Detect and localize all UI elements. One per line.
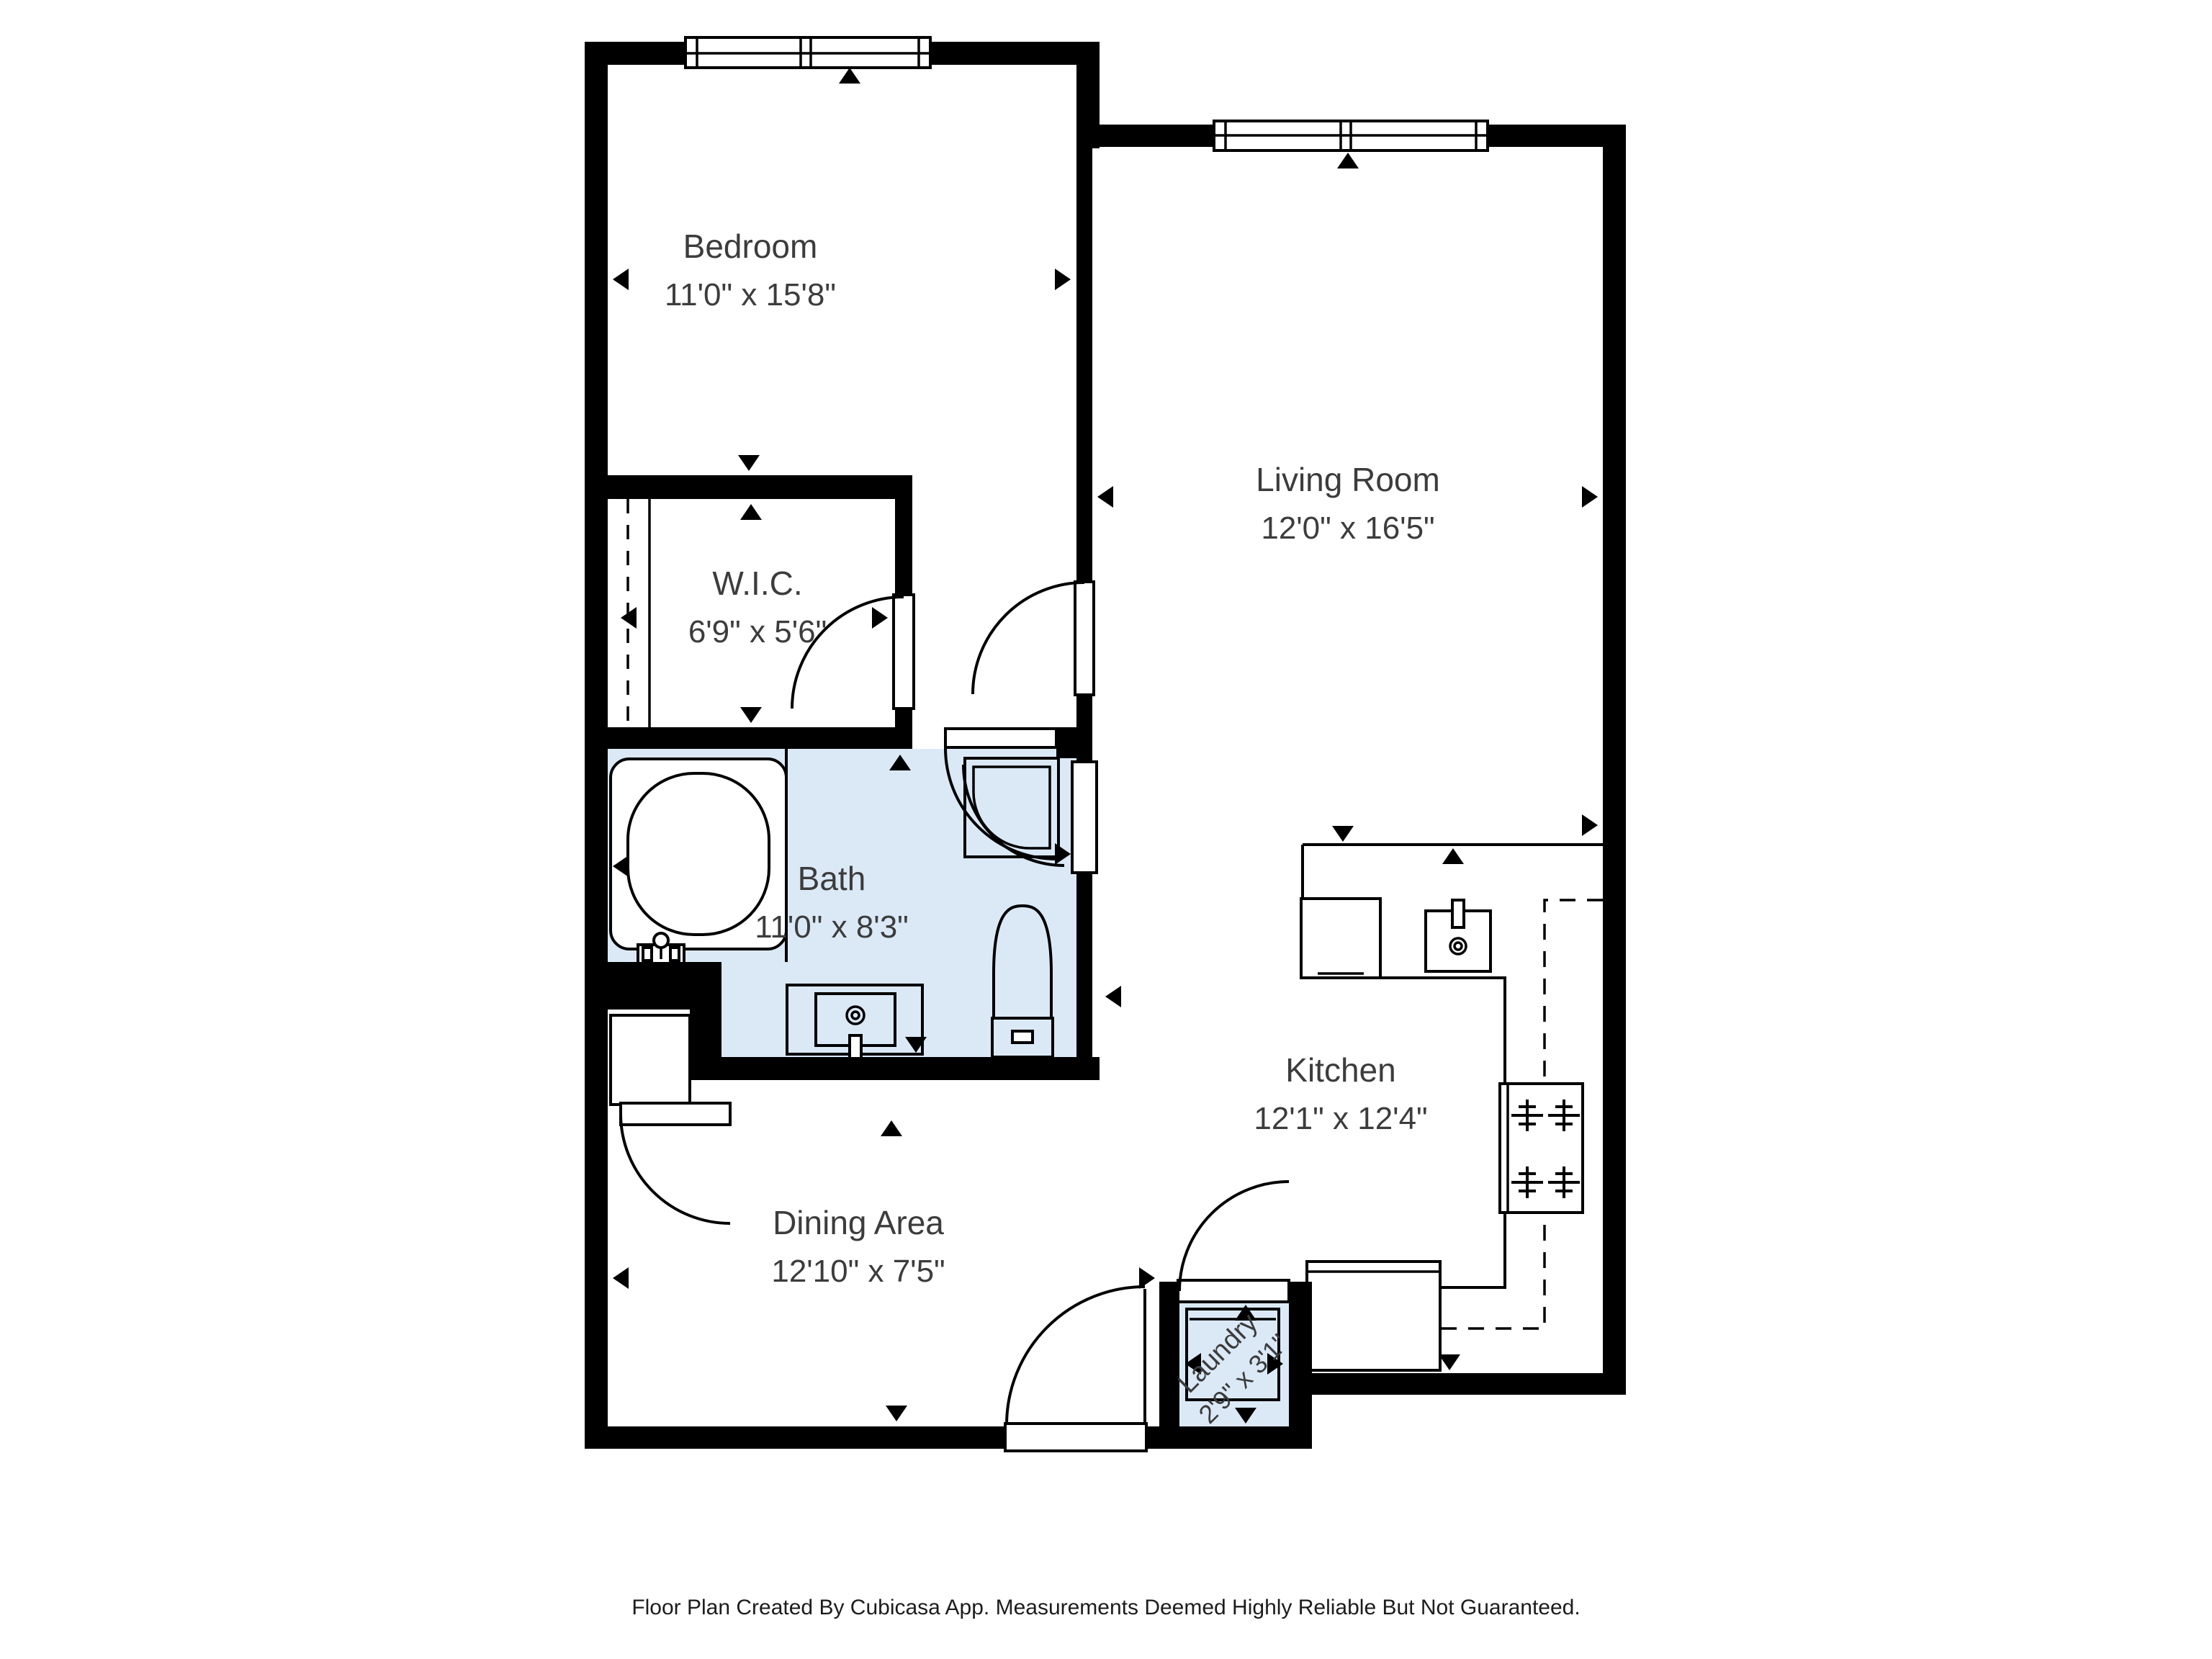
wic-dimensions: 6'9" x 5'6" <box>688 614 827 649</box>
left-exterior-wall <box>585 42 608 1449</box>
kitchen-faucet-icon <box>1452 900 1464 927</box>
stove <box>1500 1084 1583 1213</box>
bedroom-label: Bedroom <box>683 228 818 265</box>
footer-disclaimer: Floor Plan Created By Cubicasa App. Meas… <box>631 1596 1580 1619</box>
dining-area-dimensions: 12'10" x 7'5" <box>771 1254 945 1289</box>
bath-top-wall <box>608 727 895 749</box>
bath-dimensions: 11'0" x 8'3" <box>755 909 909 945</box>
dining-area-label: Dining Area <box>773 1204 944 1241</box>
wic-right-wall-lower <box>895 706 912 749</box>
bedroom-dimensions: 11'0" x 15'8" <box>665 277 836 313</box>
floor-plan-page: Bedroom 11'0" x 15'8" Living Room 12'0" … <box>0 0 2212 1659</box>
right-exterior-wall <box>1603 125 1626 1395</box>
bedroom-bottom-wall <box>608 475 912 499</box>
refrigerator-outline <box>1301 899 1380 978</box>
bath-label: Bath <box>798 860 866 897</box>
entry-door-opening <box>1005 1424 1146 1451</box>
bath-bottom-wall <box>721 1057 1100 1080</box>
kitchen-sink <box>1426 900 1491 971</box>
living-window-icon <box>1214 121 1488 150</box>
laundry-right-wall <box>1289 1282 1312 1449</box>
wic-door <box>894 595 914 709</box>
wic-right-wall-upper <box>895 475 912 596</box>
kitchen-label: Kitchen <box>1285 1051 1395 1089</box>
wic-label: W.I.C. <box>712 565 802 602</box>
bedroom-window-icon <box>685 37 930 68</box>
living-left-wall-lower <box>1076 871 1092 1080</box>
living-left-wall-middle <box>1076 693 1092 763</box>
bath-door <box>945 729 1056 747</box>
laundry-door <box>1178 1280 1289 1302</box>
dishwasher <box>1307 1262 1440 1370</box>
living-left-wall-upper <box>1076 146 1092 583</box>
laundry-left-wall <box>1159 1282 1179 1449</box>
tub-alcove-wall <box>608 962 721 1010</box>
wall-niche-opening <box>1072 762 1097 873</box>
dining-closet-opening <box>611 1015 690 1105</box>
living-room-dimensions: 12'0" x 16'5" <box>1261 511 1434 546</box>
dining-closet-door <box>621 1103 730 1125</box>
toilet-flush-button <box>1012 1031 1033 1043</box>
canvas-background <box>0 0 2212 1659</box>
refrigerator <box>1301 899 1380 978</box>
bedroom-hall-door <box>1075 582 1094 695</box>
stove-outline <box>1500 1084 1583 1213</box>
dishwasher-outline <box>1307 1262 1440 1370</box>
kitchen-dimensions: 12'1" x 12'4" <box>1254 1101 1427 1136</box>
dining-bottom-wall <box>585 1426 1312 1449</box>
living-room-label: Living Room <box>1256 461 1440 498</box>
kitchen-bottom-wall <box>1289 1373 1626 1395</box>
floor-plan-drawing: Bedroom 11'0" x 15'8" Living Room 12'0" … <box>0 0 2212 1659</box>
bath-step-wall <box>690 1010 721 1080</box>
